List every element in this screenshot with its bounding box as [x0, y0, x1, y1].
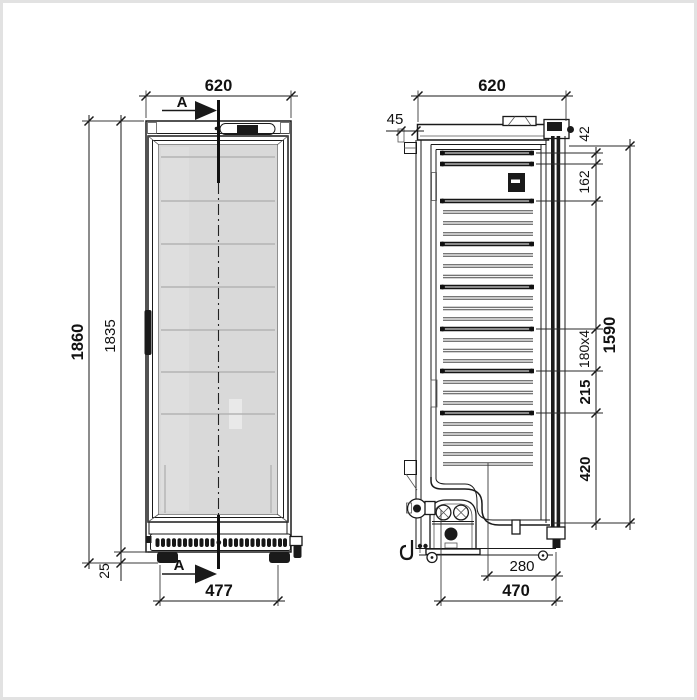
top-bracket [503, 117, 536, 126]
dim-interior-height: 1590 [601, 317, 619, 354]
glass-door [145, 136, 289, 522]
door-bottom-bracket [547, 527, 565, 539]
dim-upper-shelf-gap: 162 [576, 170, 592, 194]
door-lock-bracket [290, 537, 302, 559]
grille-left-tab [147, 536, 152, 543]
dim-base-depth: 470 [502, 582, 530, 600]
front-view: A A [145, 94, 303, 584]
dim-front-overall-height: 1860 [69, 324, 87, 361]
dim-recess-depth: 280 [509, 558, 534, 575]
front-top-left-cap [148, 123, 157, 134]
drain-hook [401, 540, 428, 559]
door-bottom-foot [553, 539, 561, 548]
section-label-top: A [177, 94, 188, 111]
dim-side-depth: 620 [478, 77, 506, 95]
side-top-cap [418, 125, 549, 141]
rear-wheel [427, 553, 437, 563]
dim-front-feet-span: 477 [205, 582, 233, 600]
dim-top-offset: 42 [576, 126, 592, 142]
technical-drawing: A A 620 1860 1835 25 477 [3, 3, 694, 697]
lock-bracket-body [290, 537, 302, 546]
front-wheel [539, 551, 548, 560]
power-cord [406, 474, 417, 490]
hinge-plate [547, 122, 562, 131]
front-top-right-cap [281, 123, 290, 134]
thermostat-box [508, 173, 525, 192]
dim-shelf-pitch: 180x4 [576, 330, 592, 368]
lock-bracket-foot [294, 545, 302, 558]
door-handle [145, 310, 152, 355]
control-panel-display [237, 125, 258, 133]
back-wall [416, 140, 421, 549]
door-glass-pane-outer [551, 136, 555, 528]
hinge-pin [567, 126, 574, 133]
dim-lower-shelf-gap: 215 [577, 379, 594, 404]
section-arrowhead-bottom [195, 565, 217, 584]
door-glass-pane-inner [557, 136, 561, 528]
dim-front-foot-height: 25 [96, 563, 112, 579]
compressor-port [445, 528, 458, 541]
dim-wall-clearance: 45 [387, 111, 404, 128]
dim-front-body-height: 1835 [102, 319, 119, 352]
front-right-foot [269, 552, 290, 563]
drawing-page: A A 620 1860 1835 25 477 [0, 0, 697, 700]
side-view [398, 117, 574, 563]
evaporator-coils [443, 212, 533, 464]
dim-bottom-zone: 420 [577, 456, 594, 481]
section-arrowhead-top [195, 101, 217, 120]
lower-wall-spacer [405, 461, 417, 475]
grille-slots [158, 540, 286, 545]
door-hinge [544, 120, 574, 139]
section-label-bottom: A [174, 557, 185, 574]
section-arrow-top: A [162, 94, 217, 120]
dim-front-width: 620 [205, 77, 233, 95]
capillary-clamp [512, 520, 520, 534]
control-panel [215, 124, 275, 135]
side-door-section [547, 136, 565, 548]
